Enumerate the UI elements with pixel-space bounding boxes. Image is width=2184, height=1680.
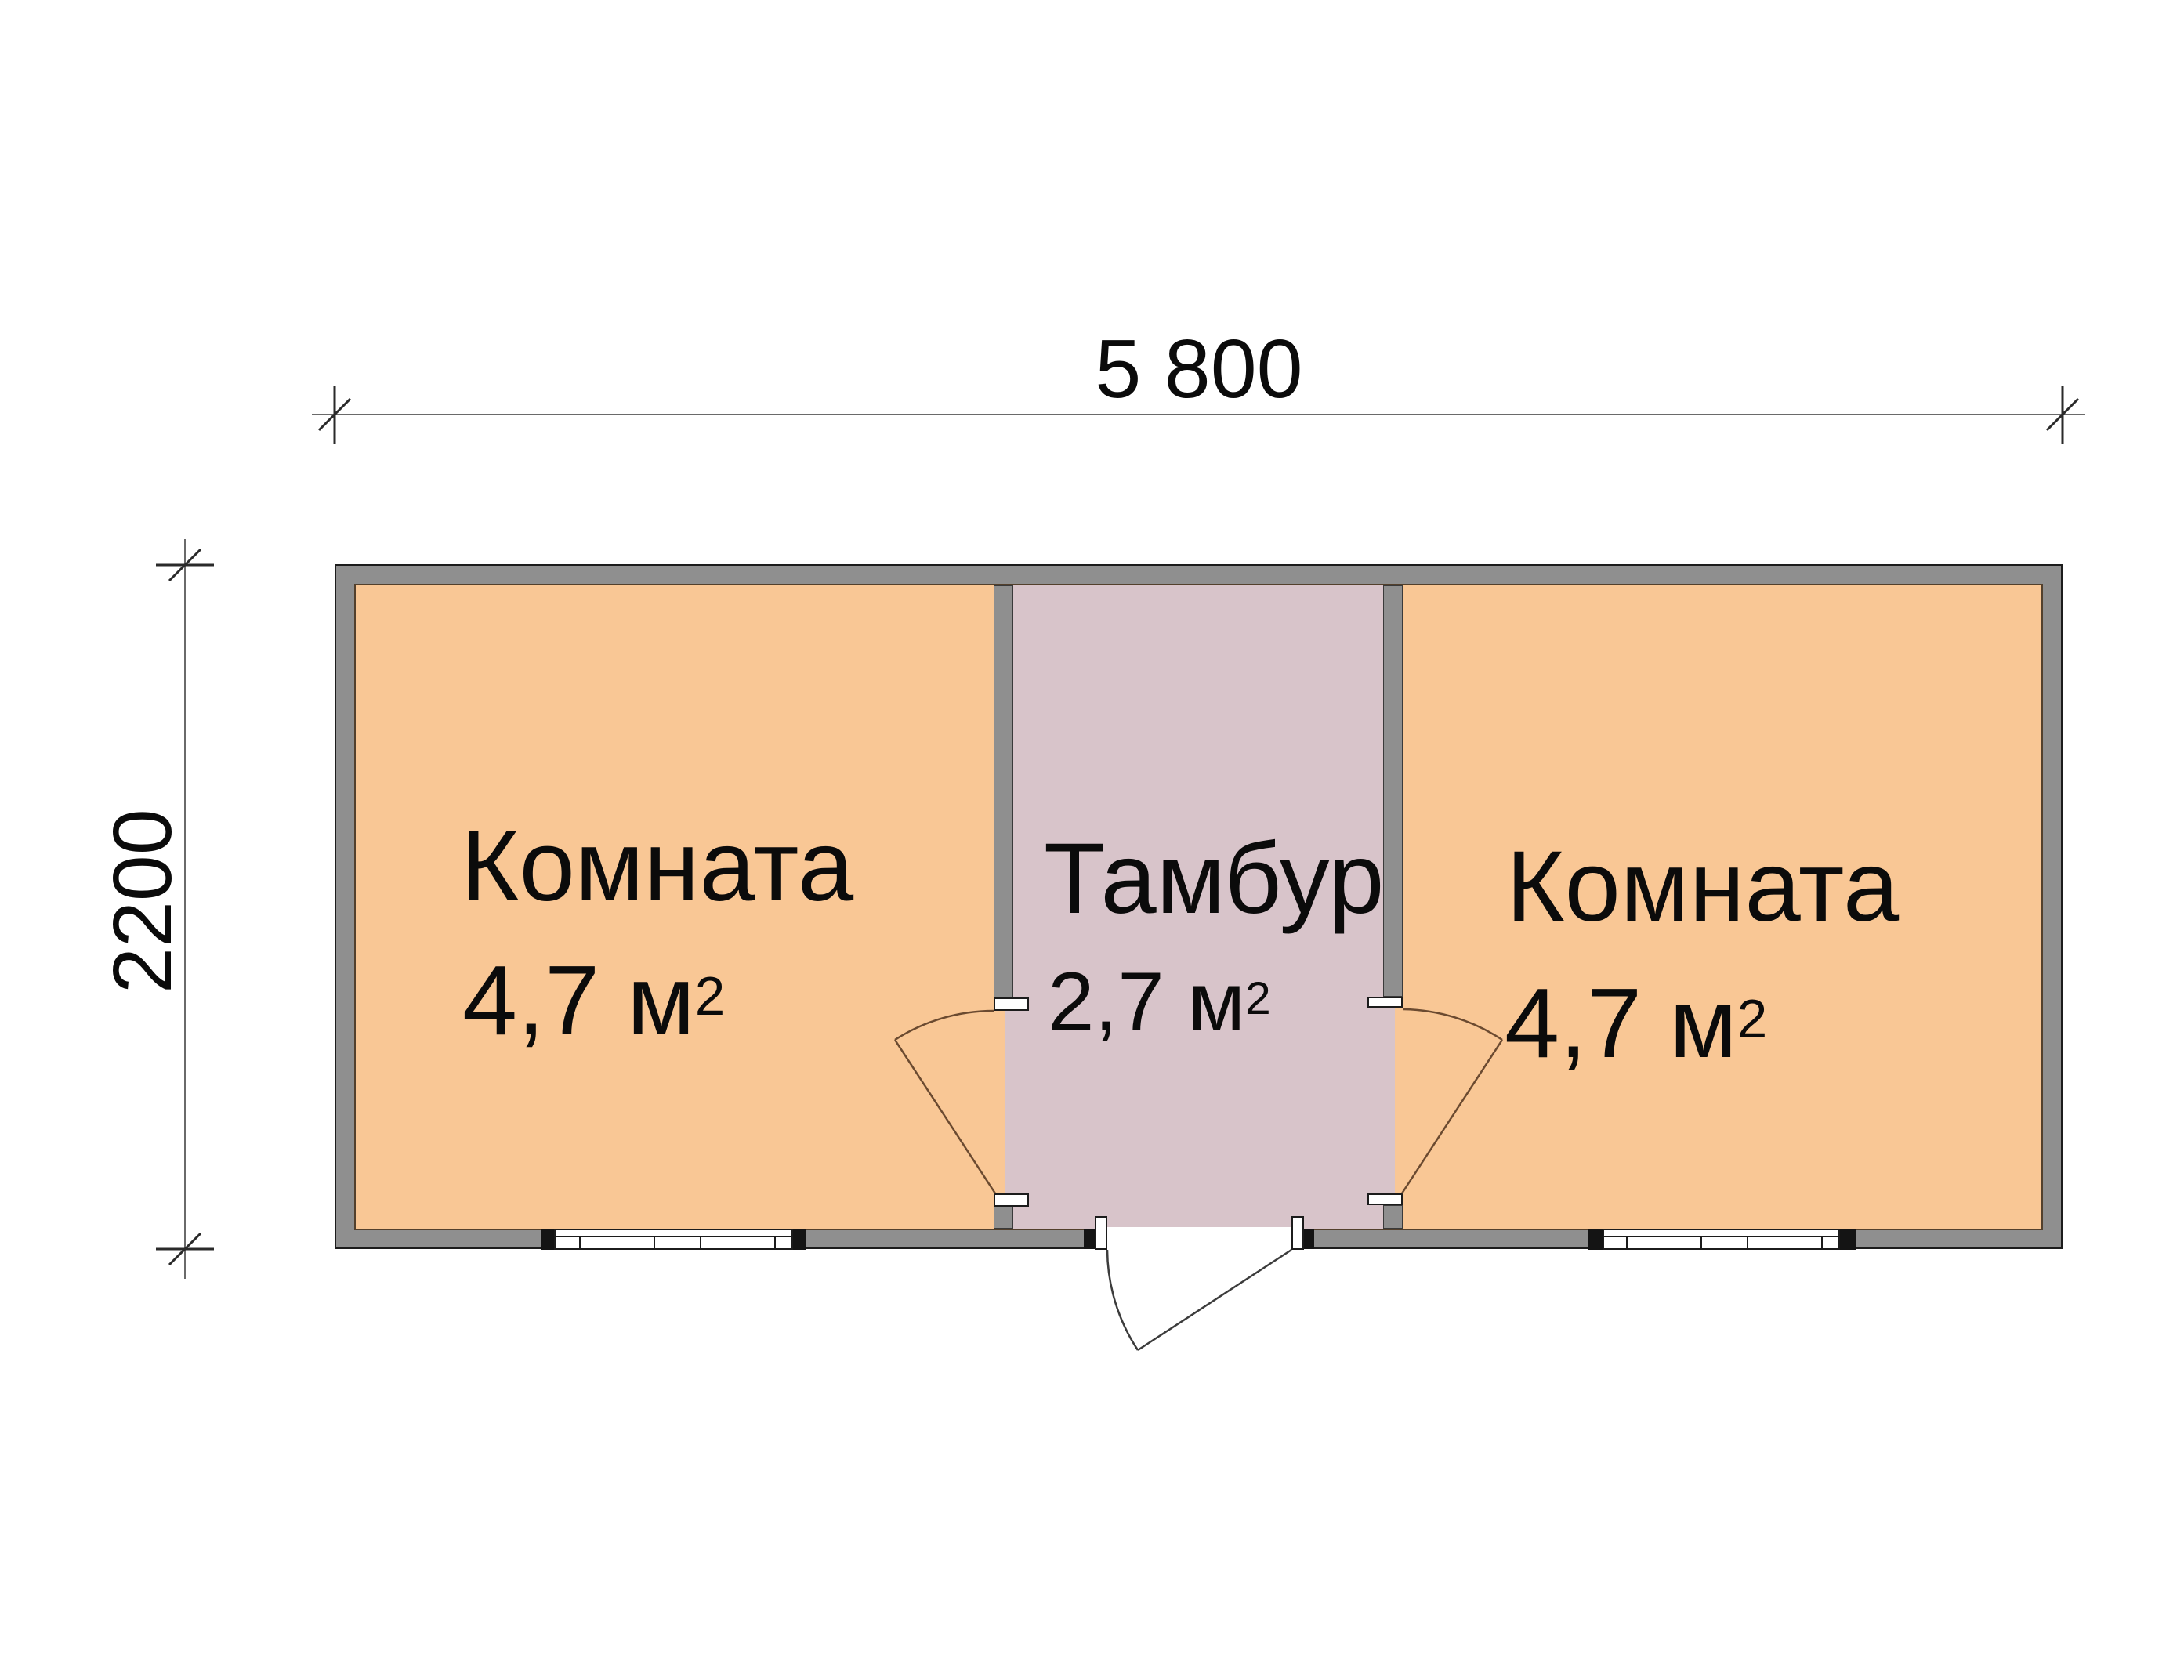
wall-end-cap <box>1840 1229 1856 1250</box>
door-jamb-left-bottom <box>994 1193 1029 1207</box>
wall-end-cap <box>793 1229 806 1250</box>
partition-right-stub <box>1383 1205 1403 1229</box>
entrance-door-lines <box>1107 1250 1291 1350</box>
window-sill-line <box>1604 1236 1838 1237</box>
tambour-name: Тамбур <box>1044 829 1384 929</box>
room-left-area-sup: 2 <box>695 965 726 1026</box>
entrance-door-opening <box>1107 1227 1291 1251</box>
dimension-height-label: 2200 <box>101 813 184 994</box>
window-sill-line <box>556 1236 791 1237</box>
room-right-name: Комната <box>1506 837 1899 937</box>
dimension-width-label: 5 800 <box>1095 328 1302 411</box>
room-left-name: Комната <box>461 816 853 917</box>
entrance-jamb-left <box>1095 1216 1107 1250</box>
wall-end-cap <box>1588 1229 1603 1250</box>
door-jamb-left-top <box>994 997 1029 1011</box>
room-right-area-sup: 2 <box>1737 988 1768 1049</box>
window-mullion <box>1626 1237 1628 1248</box>
dim-tick-left-top <box>169 549 201 581</box>
wall-end-cap <box>541 1229 554 1250</box>
tambour-area-sup: 2 <box>1245 973 1271 1024</box>
window-left <box>554 1229 793 1250</box>
window-mullion <box>1700 1237 1702 1248</box>
wall-end-cap <box>1084 1229 1095 1249</box>
window-mullion <box>1747 1237 1748 1248</box>
partition-right-upper <box>1383 585 1403 997</box>
window-mullion <box>654 1237 655 1248</box>
tambour-area: 2,7 м2 <box>1048 960 1271 1044</box>
window-mullion <box>700 1237 701 1248</box>
window-mullion <box>774 1237 776 1248</box>
door-jamb-right-top <box>1367 997 1403 1008</box>
window-right <box>1603 1229 1840 1250</box>
wall-end-cap <box>1303 1229 1314 1249</box>
floor-plan-canvas: 5 800 2200 Комната 4,7 м2 Тамбур 2,7 м2 … <box>0 0 2184 1680</box>
room-left-area: 4,7 м2 <box>462 951 725 1050</box>
entrance-jamb-right <box>1291 1216 1304 1250</box>
window-mullion <box>1821 1237 1823 1248</box>
room-right-area: 4,7 м2 <box>1505 974 1767 1073</box>
room-left-area-value: 4,7 м <box>462 945 695 1055</box>
partition-left-stub <box>994 1207 1013 1229</box>
window-mullion <box>579 1237 581 1248</box>
tambour-area-value: 2,7 м <box>1048 954 1245 1048</box>
dim-tick-left-bottom <box>169 1233 201 1265</box>
door-jamb-right-bottom <box>1367 1193 1403 1205</box>
door-swing-arc-entrance <box>1107 1250 1138 1350</box>
partition-left-upper <box>994 585 1013 997</box>
dim-tick-top-right <box>2047 399 2078 430</box>
dim-tick-top-left <box>319 399 350 430</box>
door-leaf-entrance <box>1138 1250 1291 1350</box>
room-right-area-value: 4,7 м <box>1505 968 1737 1078</box>
